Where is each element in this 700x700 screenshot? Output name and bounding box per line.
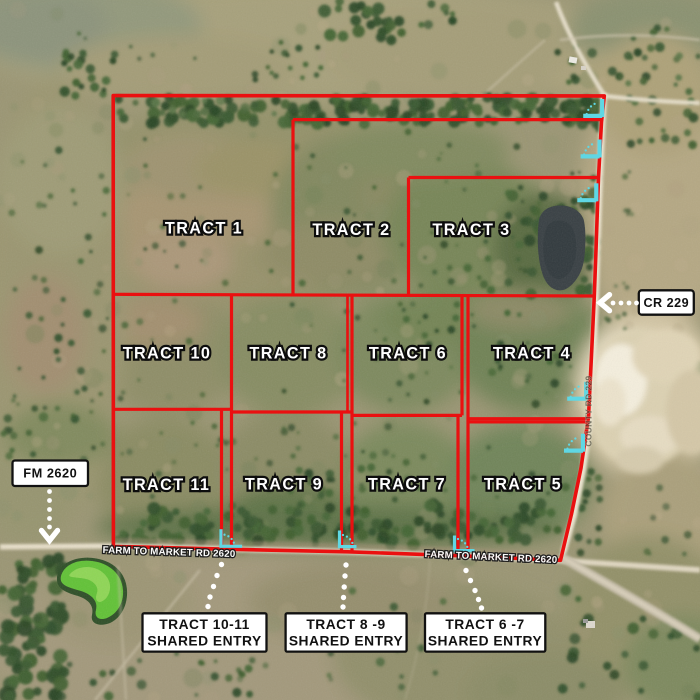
svg-text:TRACT 10: TRACT 10 xyxy=(123,345,212,363)
svg-text:TRACT 8 -9: TRACT 8 -9 xyxy=(306,617,385,632)
svg-text:CR 229: CR 229 xyxy=(643,296,689,310)
svg-text:TRACT 4: TRACT 4 xyxy=(493,345,571,363)
svg-text:TRACT 11: TRACT 11 xyxy=(123,476,211,494)
svg-text:SHARED ENTRY: SHARED ENTRY xyxy=(428,634,542,649)
svg-text:TRACT 2: TRACT 2 xyxy=(312,221,390,239)
svg-text:TRACT 3: TRACT 3 xyxy=(432,221,510,239)
svg-text:TRACT 5: TRACT 5 xyxy=(484,476,562,494)
svg-text:SHARED ENTRY: SHARED ENTRY xyxy=(147,634,261,649)
svg-text:TRACT 1: TRACT 1 xyxy=(165,220,243,238)
svg-text:COUNTY RD 229: COUNTY RD 229 xyxy=(584,375,594,446)
svg-text:TRACT 6 -7: TRACT 6 -7 xyxy=(445,617,524,632)
svg-text:TRACT 7: TRACT 7 xyxy=(368,476,446,494)
svg-text:SHARED ENTRY: SHARED ENTRY xyxy=(289,634,403,649)
svg-text:TRACT 10-11: TRACT 10-11 xyxy=(159,617,250,632)
svg-text:TRACT 6: TRACT 6 xyxy=(369,345,447,363)
svg-text:FM 2620: FM 2620 xyxy=(23,466,77,481)
svg-text:TRACT 9: TRACT 9 xyxy=(245,476,323,494)
svg-text:TRACT 8: TRACT 8 xyxy=(249,345,327,363)
